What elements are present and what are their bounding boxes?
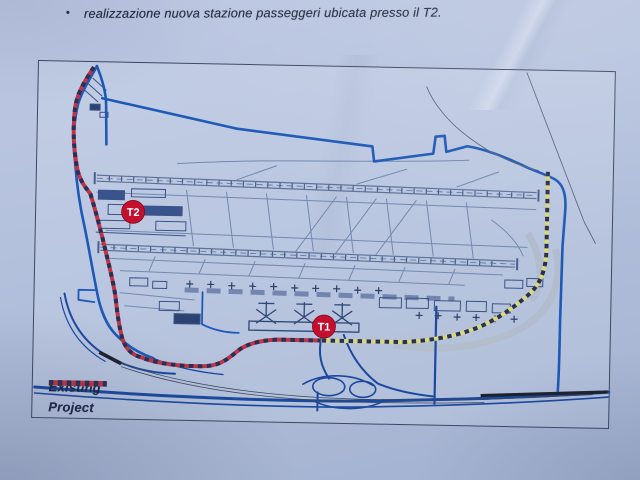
- rail-lines: [99, 352, 609, 407]
- photographed-page: • realizzazione nuova stazione passegger…: [0, 0, 640, 480]
- bullet-row: • realizzazione nuova stazione passegger…: [66, 4, 606, 21]
- t2-marker: T2: [121, 200, 144, 223]
- t2-marker-label: T2: [127, 207, 140, 219]
- legend-label-project: Project: [48, 399, 94, 415]
- project-line-swatch: [49, 379, 107, 387]
- bullet-point: •: [66, 6, 70, 21]
- airport-map-frame: T2 T1 Existing Project: [31, 60, 616, 429]
- t1-piers: [249, 301, 360, 332]
- bullet-text: realizzazione nuova stazione passeggeri …: [84, 5, 442, 21]
- map-legend: Existing Project: [48, 379, 101, 415]
- runway-south: [98, 241, 517, 270]
- airport-map-svg: T2 T1: [32, 61, 617, 430]
- legend-row-project: Project: [48, 399, 100, 415]
- top-right-roads: [424, 70, 599, 243]
- t1-marker: T1: [312, 315, 335, 338]
- terminal-building-row: [185, 290, 455, 299]
- buildings: [80, 78, 547, 331]
- t1-marker-label: T1: [317, 321, 330, 333]
